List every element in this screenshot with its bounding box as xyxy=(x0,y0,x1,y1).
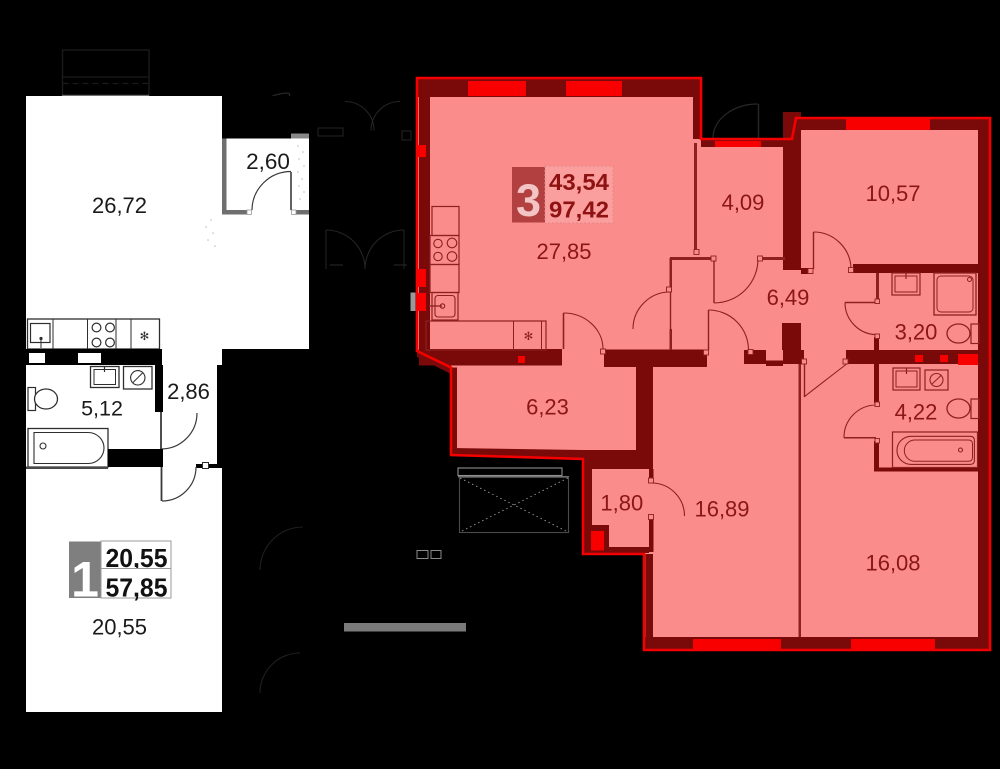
svg-text:1,80: 1,80 xyxy=(600,491,643,516)
svg-text:3,20: 3,20 xyxy=(895,320,938,345)
svg-text:4,09: 4,09 xyxy=(722,190,765,215)
svg-text:97,42: 97,42 xyxy=(549,197,609,223)
svg-text:2,60: 2,60 xyxy=(246,149,290,174)
svg-text:6,49: 6,49 xyxy=(767,285,810,310)
svg-text:16,08: 16,08 xyxy=(865,551,920,576)
svg-text:10,57: 10,57 xyxy=(865,181,920,206)
svg-text:✻: ✻ xyxy=(140,331,150,343)
svg-text:20,55: 20,55 xyxy=(92,615,147,640)
svg-text:1: 1 xyxy=(71,552,99,608)
svg-text:2,86: 2,86 xyxy=(167,379,210,404)
svg-text:✻: ✻ xyxy=(524,331,534,343)
svg-text:27,85: 27,85 xyxy=(536,239,591,264)
svg-text:4,22: 4,22 xyxy=(895,400,938,425)
svg-text:6,23: 6,23 xyxy=(526,395,569,420)
svg-text:16,89: 16,89 xyxy=(694,497,749,522)
svg-text:43,54: 43,54 xyxy=(549,169,609,195)
svg-text:57,85: 57,85 xyxy=(106,573,168,603)
svg-text:3: 3 xyxy=(516,175,541,226)
svg-text:5,12: 5,12 xyxy=(81,397,123,421)
svg-text:26,72: 26,72 xyxy=(92,193,147,218)
